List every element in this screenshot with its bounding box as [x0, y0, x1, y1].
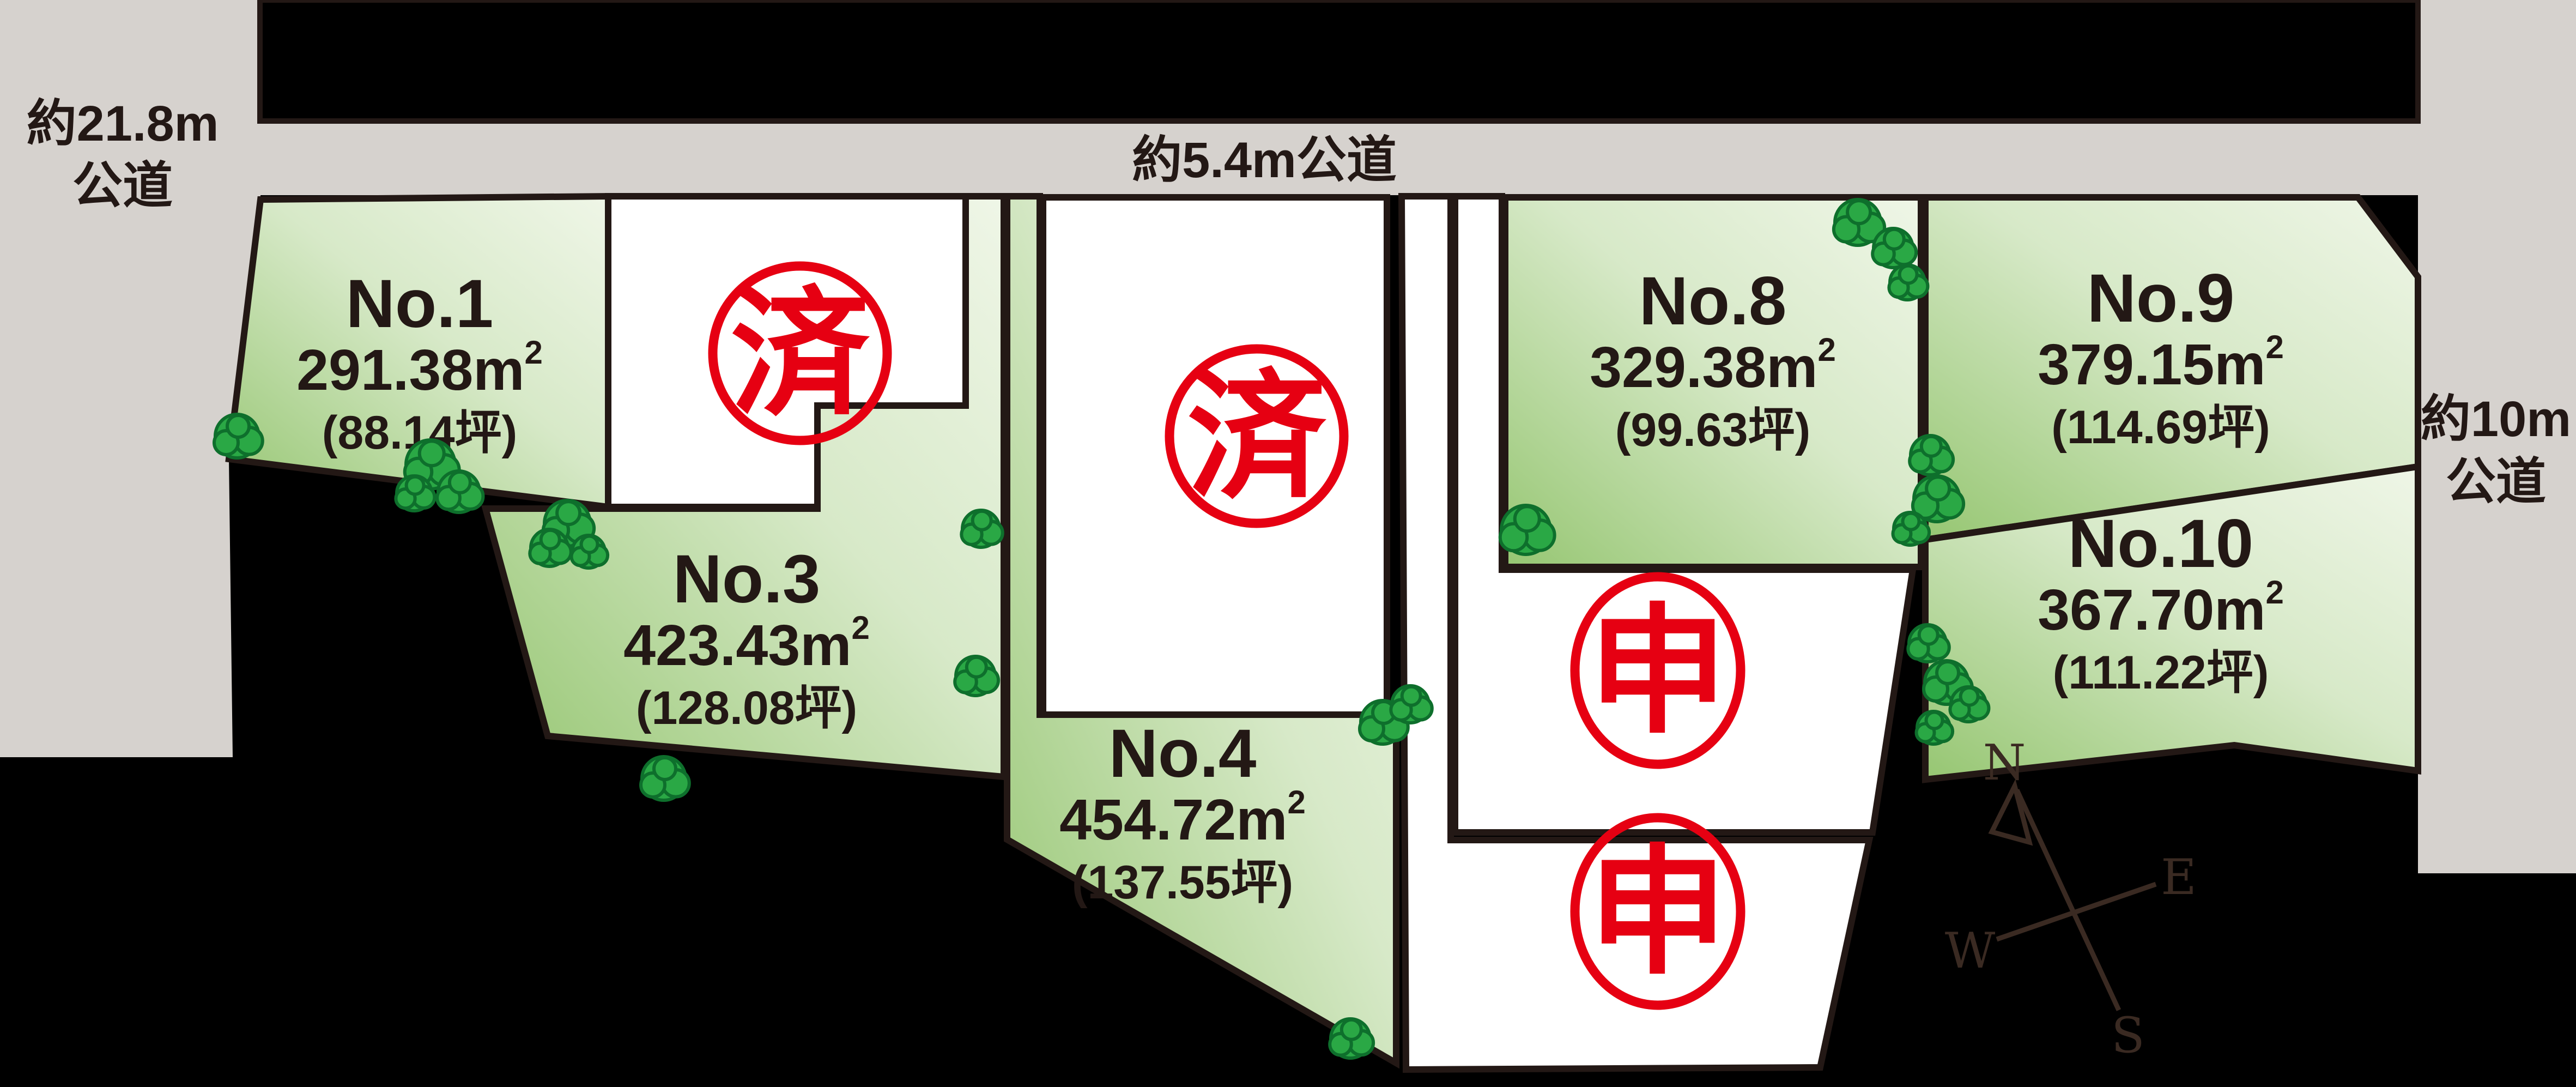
sold-stamp-1: 済: [713, 266, 887, 440]
tree-icon: [396, 476, 434, 511]
lot-number: No.4: [1109, 716, 1257, 792]
lot-no10-label: No.10 367.70m2 (111.22坪): [2038, 506, 2284, 699]
top-black-band: [260, 0, 2418, 121]
applied-stamp-2: 申: [1575, 818, 1741, 1005]
lot-area-m2: 454.72m2: [1059, 784, 1306, 852]
compass-label-e: E: [2161, 849, 2197, 906]
compass-label-w: W: [1945, 922, 1996, 980]
road-top-label: 約5.4m公道: [1132, 132, 1397, 188]
stamp-text: 済: [730, 277, 870, 432]
stamp-text: 済: [1187, 360, 1326, 515]
lot-number: No.9: [2087, 261, 2235, 336]
tree-icon: [1917, 711, 1953, 744]
tree-icon: [572, 535, 608, 568]
lot-number: No.8: [1639, 263, 1787, 339]
road-type-text: 公道: [72, 158, 173, 214]
sold-stamp-2: 済: [1169, 349, 1344, 523]
land-plot-map: No.1 291.38m2 (88.14坪) No.3 423.43m2 (12…: [0, 0, 2576, 1087]
road-type-text: 公道: [2446, 454, 2546, 510]
tree-icon: [1893, 512, 1930, 545]
road-width-text: 約21.8m: [27, 96, 219, 152]
lot-area-tsubo: (128.08坪): [636, 682, 857, 734]
tree-icon: [1889, 265, 1928, 300]
compass-label-n: N: [1983, 734, 2026, 792]
plot-map-canvas: No.1 291.38m2 (88.14坪) No.3 423.43m2 (12…: [0, 0, 2576, 1087]
applied-stamp-1: 申: [1575, 577, 1741, 764]
stamp-text: 申: [1588, 835, 1727, 991]
lot-area-m2: 423.43m2: [623, 609, 870, 678]
lot-area-m2: 329.38m2: [1590, 331, 1836, 400]
lot-number: No.10: [2068, 506, 2253, 582]
lot-area-tsubo: (114.69坪): [2051, 401, 2270, 454]
lot-area-tsubo: (137.55坪): [1072, 856, 1293, 909]
lot-area-tsubo: (111.22坪): [2053, 647, 2269, 699]
lot-area-m2: 291.38m2: [296, 334, 543, 402]
lot-area-m2: 367.70m2: [2038, 574, 2284, 642]
lot-number: No.3: [673, 541, 821, 617]
tree-icon: [1950, 687, 1989, 722]
lot-number: No.1: [346, 266, 494, 342]
stamp-text: 申: [1588, 594, 1727, 750]
compass-label-s: S: [2111, 1007, 2145, 1064]
lot-area-tsubo: (99.63坪): [1615, 404, 1811, 456]
lot-area-m2: 379.15m2: [2038, 329, 2284, 397]
road-width-text: 約10m: [2421, 391, 2571, 447]
